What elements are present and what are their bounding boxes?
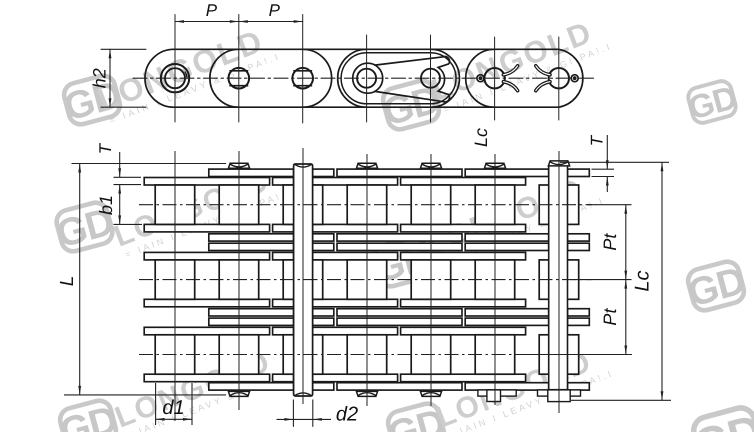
svg-text:T: T (96, 142, 115, 154)
svg-text:Pt: Pt (600, 308, 620, 326)
svg-text:b1: b1 (96, 195, 116, 215)
svg-text:L: L (57, 276, 78, 287)
svg-text:d1: d1 (162, 397, 184, 419)
svg-text:Pt: Pt (600, 233, 620, 251)
svg-text:Lc: Lc (632, 270, 654, 291)
svg-text:T: T (588, 134, 607, 146)
svg-text:d2: d2 (336, 404, 358, 426)
svg-text:P: P (269, 1, 281, 20)
svg-text:P: P (206, 1, 218, 20)
svg-text:Lc: Lc (471, 128, 491, 147)
svg-text:h2: h2 (90, 68, 110, 88)
